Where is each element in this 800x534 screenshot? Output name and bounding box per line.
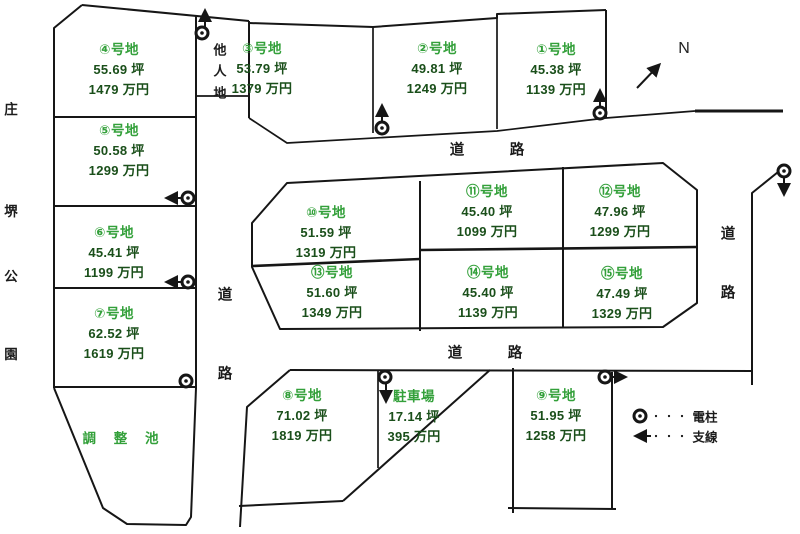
plot-3-label: ③号地 53.79 坪 1379 万円 [232, 39, 293, 99]
road-top-label-1: 道 [450, 139, 465, 160]
plot-4-name: ④号地 [89, 40, 150, 60]
plot-13-price: 1349 万円 [302, 303, 363, 323]
pole-icon [376, 122, 388, 134]
top-plots-upper-edge [249, 10, 606, 27]
plot-12-area: 47.96 坪 [590, 202, 651, 222]
plot-13-area: 51.60 坪 [302, 283, 363, 303]
other-land-char-2: 人 [213, 61, 226, 80]
plot-3-price: 1379 万円 [232, 79, 293, 99]
plot-2-price: 1249 万円 [407, 79, 468, 99]
road-top-label-2: 路 [510, 139, 525, 160]
parking-area: 17.14 坪 [387, 407, 440, 427]
plot-4-label: ④号地 55.69 坪 1479 万円 [89, 40, 150, 100]
plot-10-label: ⑩号地 51.59 坪 1319 万円 [296, 203, 357, 263]
road-right-label-1: 道 [721, 223, 736, 244]
plot-8-name: ⑧号地 [272, 386, 333, 406]
legend-wire-label: 支線 [692, 427, 717, 446]
plot-15-price: 1329 万円 [592, 304, 653, 324]
plot-1-label: ①号地 45.38 坪 1139 万円 [526, 40, 586, 100]
plot-15-name: ⑮号地 [592, 264, 653, 284]
plot-10-area: 51.59 坪 [296, 223, 357, 243]
plot9-bottom-edge [508, 508, 616, 509]
plot-2-area: 49.81 坪 [407, 59, 468, 79]
park-name-char-3: 公 [4, 265, 18, 285]
plot-15-area: 47.49 坪 [592, 284, 653, 304]
north-arrow [637, 65, 659, 88]
divider-row-11-14-12-15 [420, 247, 697, 250]
left-column-left-edge [54, 5, 82, 388]
parking-label: 駐車場 17.14 坪 395 万円 [387, 387, 440, 447]
compass-north-label: N [678, 40, 690, 58]
plot-8-label: ⑧号地 71.02 坪 1819 万円 [272, 386, 333, 446]
plot-7-price: 1619 万円 [84, 344, 145, 364]
pole-icon [599, 371, 611, 383]
plot-11-area: 45.40 坪 [457, 202, 518, 222]
road-left-label-1: 道 [218, 284, 233, 305]
plot-9-price: 1258 万円 [526, 426, 587, 446]
plot-5-name: ⑤号地 [89, 121, 150, 141]
legend-pole-icon [634, 410, 646, 422]
plot-3-area: 53.79 坪 [232, 59, 293, 79]
pole-icon [182, 276, 194, 288]
bottom-road-lower-edge [290, 370, 752, 371]
plot-2-name: ②号地 [407, 39, 468, 59]
plot-6-name: ⑥号地 [84, 223, 144, 243]
plot-9-label: ⑨号地 51.95 坪 1258 万円 [526, 386, 587, 446]
plot-7-area: 62.52 坪 [84, 324, 145, 344]
plot-14-name: ⑭号地 [458, 263, 518, 283]
road-right-label-2: 路 [721, 282, 736, 303]
parking-price: 395 万円 [387, 427, 440, 447]
other-land-char-1: 他 [213, 40, 226, 59]
plot8-bottom-edge [239, 501, 343, 506]
plot-13-label: ⑬号地 51.60 坪 1349 万円 [302, 263, 363, 323]
plot-11-name: ⑪号地 [457, 182, 518, 202]
plot-6-price: 1199 万円 [84, 263, 144, 283]
plot-4-area: 55.69 坪 [89, 60, 150, 80]
pond-label: 調 整 池 [82, 427, 165, 447]
pole-icon [180, 375, 192, 387]
plot-4-price: 1479 万円 [89, 80, 150, 100]
plot-14-price: 1139 万円 [458, 303, 518, 323]
park-name-char-2: 堺 [4, 200, 18, 220]
plot-11-price: 1099 万円 [457, 222, 518, 242]
plot-12-name: ⑫号地 [590, 182, 651, 202]
plot-14-area: 45.40 坪 [458, 283, 518, 303]
pole-icon [379, 371, 391, 383]
plot-7-name: ⑦号地 [84, 304, 145, 324]
pole-icon [196, 27, 208, 39]
plot-1-area: 45.38 坪 [526, 60, 586, 80]
pole-icon [594, 107, 606, 119]
pole-icon [182, 192, 194, 204]
top-road-upper-edge [249, 111, 695, 143]
plot-5-label: ⑤号地 50.58 坪 1299 万円 [89, 121, 150, 181]
pole-icon [778, 165, 790, 177]
plot-1-name: ①号地 [526, 40, 586, 60]
plot-7-label: ⑦号地 62.52 坪 1619 万円 [84, 304, 145, 364]
plot-12-price: 1299 万円 [590, 222, 651, 242]
park-name-char-4: 園 [4, 343, 18, 363]
plot-6-label: ⑥号地 45.41 坪 1199 万円 [84, 223, 144, 283]
parking-name: 駐車場 [387, 387, 440, 407]
plot-14-label: ⑭号地 45.40 坪 1139 万円 [458, 263, 518, 323]
pond-outline [54, 388, 196, 525]
plot-8-area: 71.02 坪 [272, 406, 333, 426]
plot-11-label: ⑪号地 45.40 坪 1099 万円 [457, 182, 518, 242]
plot-5-area: 50.58 坪 [89, 141, 150, 161]
right-road-edge [752, 168, 783, 385]
plot-13-name: ⑬号地 [302, 263, 363, 283]
boundary-top-left [82, 5, 249, 21]
land-plot-map: ①号地 45.38 坪 1139 万円 ②号地 49.81 坪 1249 万円 … [0, 0, 800, 534]
legend-pole-label: 電柱 [692, 407, 717, 426]
legend-dots: ・・・ [651, 410, 690, 423]
plot-3-name: ③号地 [232, 39, 293, 59]
plot-9-area: 51.95 坪 [526, 406, 587, 426]
plot-5-price: 1299 万円 [89, 161, 150, 181]
plot-10-name: ⑩号地 [296, 203, 357, 223]
plot-10-price: 1319 万円 [296, 243, 357, 263]
plot-2-label: ②号地 49.81 坪 1249 万円 [407, 39, 468, 99]
other-land-char-3: 地 [213, 83, 226, 102]
park-name-char-1: 庄 [4, 98, 18, 118]
plot-6-area: 45.41 坪 [84, 243, 144, 263]
plot-8-price: 1819 万円 [272, 426, 333, 446]
plot-1-price: 1139 万円 [526, 80, 586, 100]
legend-dots: ・・・ [651, 430, 690, 443]
plot-15-label: ⑮号地 47.49 坪 1329 万円 [592, 264, 653, 324]
road-left-label-2: 路 [218, 363, 233, 384]
plot-9-name: ⑨号地 [526, 386, 587, 406]
road-middle-label-2: 路 [508, 342, 523, 363]
road-middle-label-1: 道 [448, 342, 463, 363]
plot-12-label: ⑫号地 47.96 坪 1299 万円 [590, 182, 651, 242]
